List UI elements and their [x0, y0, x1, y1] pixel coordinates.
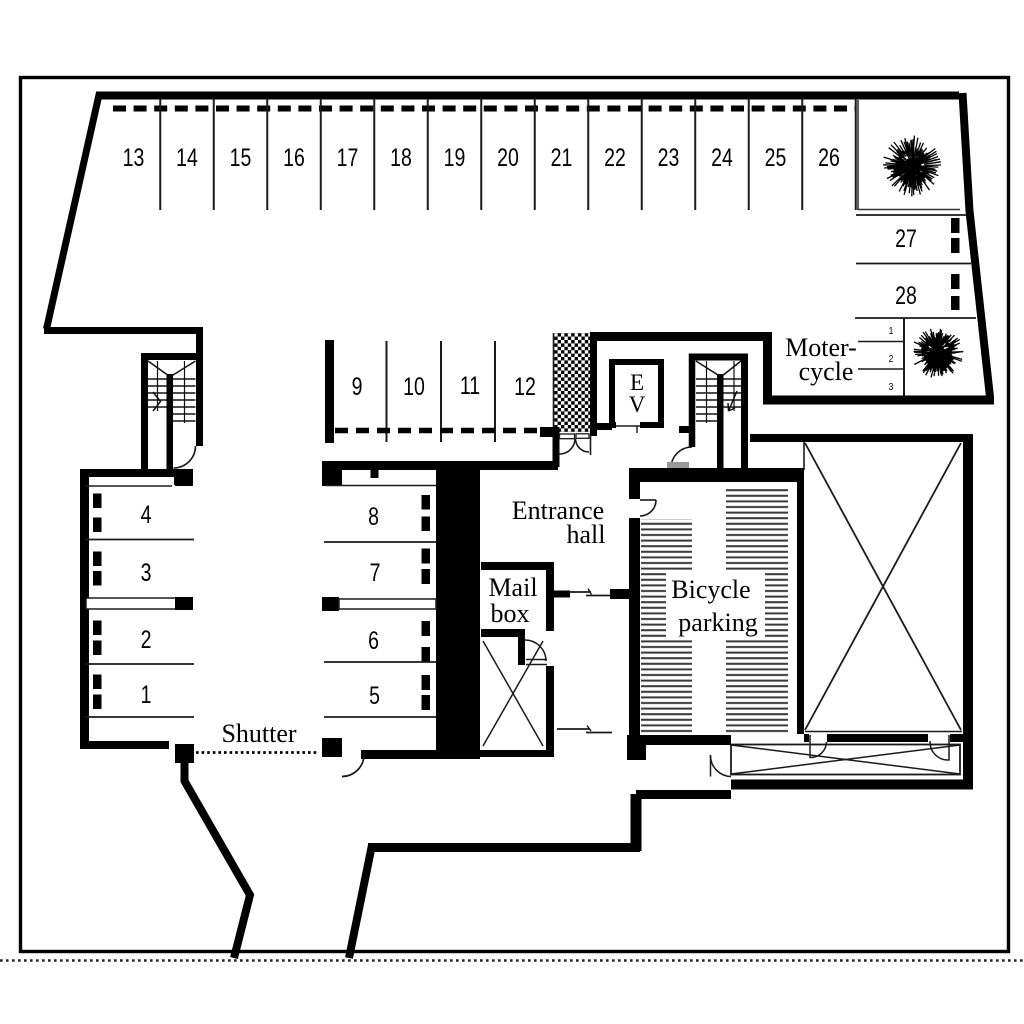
svg-text:6: 6: [368, 627, 379, 655]
svg-text:12: 12: [514, 373, 536, 401]
svg-text:1: 1: [141, 681, 152, 709]
svg-text:28: 28: [895, 282, 917, 310]
svg-text:3: 3: [889, 381, 894, 392]
svg-text:3: 3: [141, 559, 152, 587]
svg-text:13: 13: [123, 144, 145, 172]
svg-text:hall: hall: [567, 520, 606, 549]
svg-text:Shutter: Shutter: [221, 719, 296, 748]
svg-text:26: 26: [818, 144, 840, 172]
svg-text:7: 7: [370, 559, 381, 587]
svg-text:box: box: [491, 599, 530, 628]
svg-text:18: 18: [390, 144, 412, 172]
svg-text:25: 25: [765, 144, 787, 172]
svg-text:cycle: cycle: [799, 357, 854, 386]
svg-text:19: 19: [444, 144, 466, 172]
svg-text:23: 23: [658, 144, 680, 172]
svg-text:24: 24: [711, 144, 733, 172]
svg-text:10: 10: [403, 373, 425, 401]
svg-text:20: 20: [497, 144, 519, 172]
svg-text:2: 2: [889, 353, 894, 364]
svg-text:Mail: Mail: [488, 573, 537, 602]
svg-text:parking: parking: [678, 608, 757, 637]
svg-text:4: 4: [141, 501, 152, 529]
svg-text:1: 1: [889, 325, 894, 336]
svg-text:16: 16: [283, 144, 305, 172]
svg-text:21: 21: [551, 144, 573, 172]
svg-text:9: 9: [352, 373, 363, 401]
svg-text:11: 11: [460, 372, 480, 400]
svg-text:27: 27: [895, 225, 917, 253]
svg-text:14: 14: [176, 144, 198, 172]
svg-text:5: 5: [369, 682, 380, 710]
svg-text:V: V: [629, 392, 646, 417]
svg-text:22: 22: [604, 144, 626, 172]
svg-text:15: 15: [230, 144, 252, 172]
svg-text:17: 17: [337, 144, 359, 172]
svg-text:8: 8: [368, 503, 379, 531]
svg-text:2: 2: [141, 626, 152, 654]
svg-text:Bicycle: Bicycle: [671, 575, 750, 604]
